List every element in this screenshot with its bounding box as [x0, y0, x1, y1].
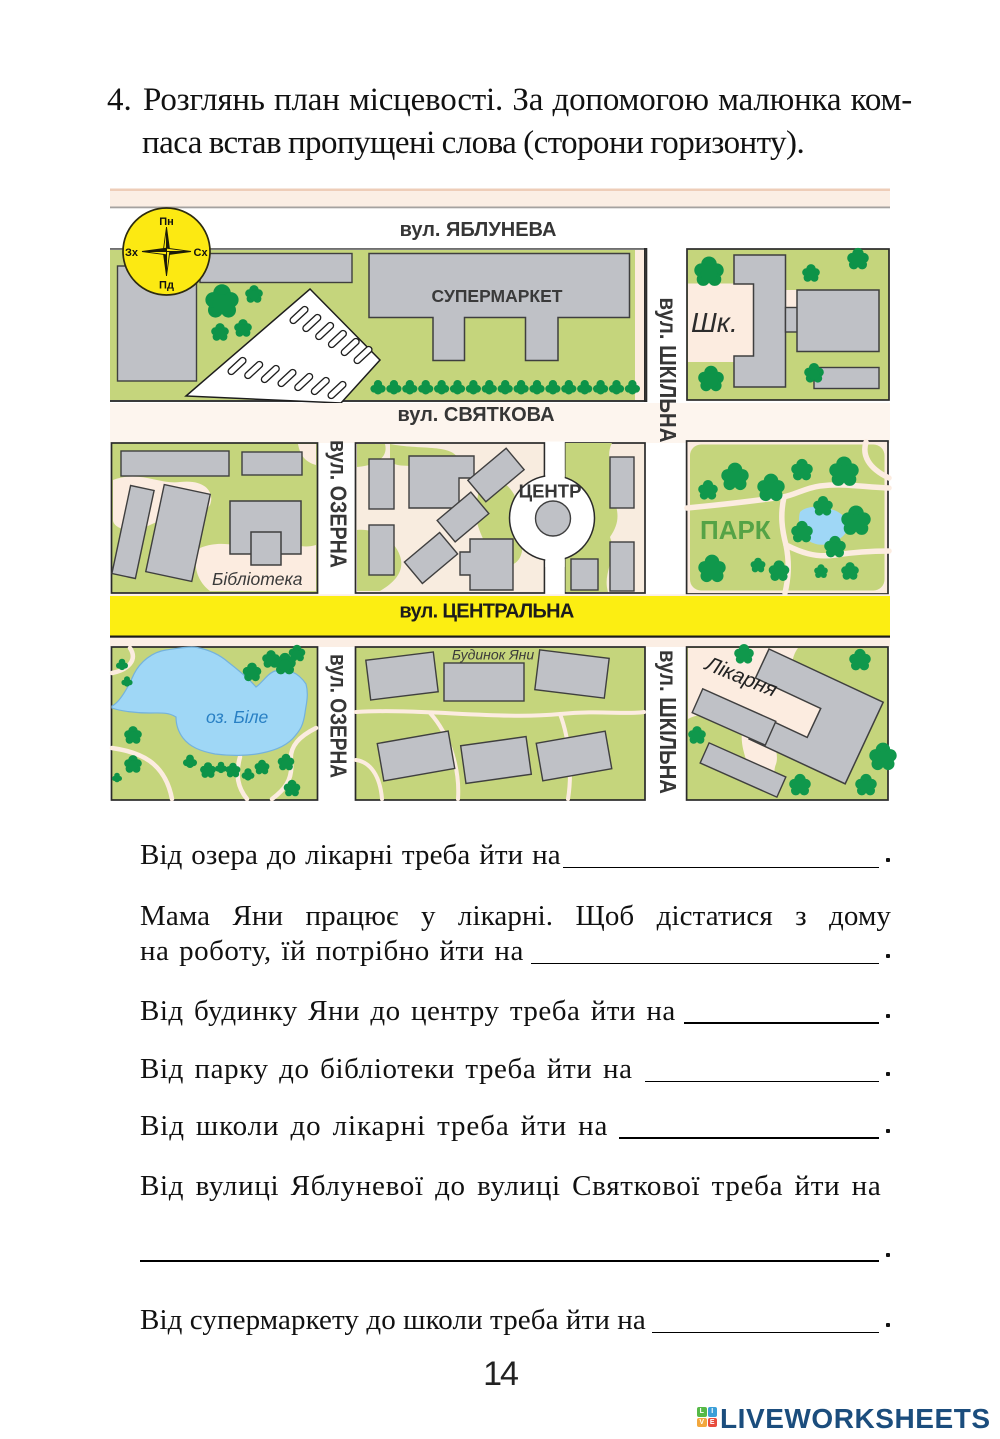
svg-text:СУПЕРМАРКЕТ: СУПЕРМАРКЕТ — [432, 286, 563, 306]
svg-text:Пд: Пд — [159, 280, 174, 292]
svg-text:ЦЕНТР: ЦЕНТР — [519, 481, 582, 502]
svg-text:Будинок Яни: Будинок Яни — [452, 647, 535, 663]
svg-text:вул. ЦЕНТРАЛЬНА: вул. ЦЕНТРАЛЬНА — [399, 601, 573, 623]
svg-text:вул. ШКІЛЬНА: вул. ШКІЛЬНА — [655, 298, 681, 443]
svg-text:Сх: Сх — [194, 247, 209, 259]
svg-text:вул. ОЗЕРНА: вул. ОЗЕРНА — [326, 440, 352, 568]
svg-text:Бібліотека: Бібліотека — [212, 569, 303, 589]
svg-text:вул. ОЗЕРНА: вул. ОЗЕРНА — [326, 654, 352, 778]
svg-text:ПАРК: ПАРК — [700, 515, 771, 545]
svg-text:вул. СВЯТКОВА: вул. СВЯТКОВА — [397, 404, 554, 426]
svg-text:вул. ЯБЛУНЕВА: вул. ЯБЛУНЕВА — [400, 219, 557, 241]
svg-text:Пн: Пн — [159, 216, 174, 228]
svg-text:оз. Біле: оз. Біле — [206, 707, 269, 727]
svg-text:вул. ШКІЛЬНА: вул. ШКІЛЬНА — [655, 650, 681, 794]
svg-text:Зх: Зх — [125, 247, 139, 259]
svg-text:Шк.: Шк. — [691, 307, 738, 338]
